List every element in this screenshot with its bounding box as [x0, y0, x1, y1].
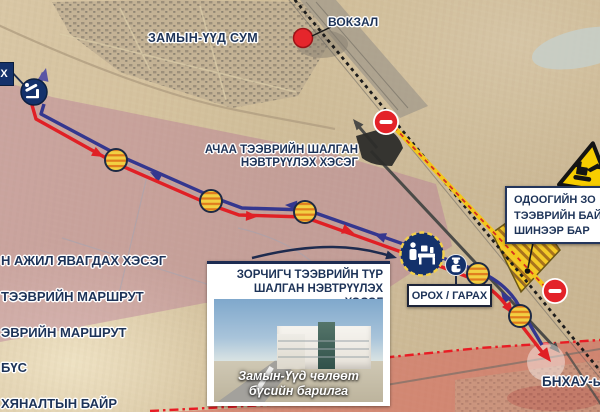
photo-caption: Замын-Үүд чөлөөт бүсийн барилга — [214, 369, 383, 399]
construction-leader-dot — [525, 268, 531, 274]
legend-item: БҮС — [1, 361, 166, 379]
legend-item: ХЯНАЛТЫН БАЙР — [1, 397, 166, 412]
photo-building — [277, 326, 372, 369]
legend-item: Н АЖИЛ ЯВАГДАХ ХЭСЭГ — [1, 254, 166, 272]
legend-item: ТЭЭВРИЙН МАРШРУТ — [1, 290, 166, 308]
station-label: ВОКЗАЛ — [328, 16, 378, 29]
passenger-checkpoint-callout: ЗОРЧИГЧ ТЭЭВРИЙН ТҮР ШАЛГАН НЭВТРҮҮЛЭХ Х… — [207, 261, 390, 406]
checkpoint-marker — [105, 149, 127, 171]
checkpoint-marker — [509, 305, 531, 327]
legend-item: ЭВРИЙН МАРШРУТ — [1, 326, 166, 344]
edge-partial-label: Х — [0, 62, 14, 86]
town-area — [52, 0, 330, 108]
map-canvas: ЗАМЫН-ҮҮД СУМ ВОКЗАЛ АЧАА ТЭЭВРИЙН ШАЛГА… — [0, 0, 600, 412]
entry-exit-label: ОРОХ / ГАРАХ — [407, 284, 492, 307]
no-entry-sign — [542, 278, 568, 304]
border-barrier-icon — [21, 79, 47, 105]
station-marker — [294, 29, 313, 48]
photo-building-windows — [278, 334, 369, 360]
cargo-checkpoint-label: АЧАА ТЭЭВРИЙН ШАЛГАН НЭВТРҮҮЛЭХ ХЭСЭГ — [203, 144, 358, 170]
china-label: БНХАУ-ы — [542, 374, 600, 389]
pond-area — [528, 19, 600, 78]
construction-notice: ОДООГИЙН ЗО ТЭЭВРИЙН БАЙ ШИНЭЭР БАР — [505, 186, 600, 244]
checkpoint-marker — [294, 201, 316, 223]
no-entry-sign — [373, 109, 399, 135]
free-zone-building-photo: Замын-Үүд чөлөөт бүсийн барилга — [214, 299, 383, 402]
checkpoint-marker — [467, 263, 489, 285]
town-label: ЗАМЫН-ҮҮД СУМ — [148, 31, 258, 45]
roadworks-warning-icon — [559, 139, 600, 193]
legend: Н АЖИЛ ЯВАГДАХ ХЭСЭГ ТЭЭВРИЙН МАРШРУТ ЭВ… — [1, 236, 166, 412]
checkpoint-marker — [200, 190, 222, 212]
customs-desk-icon — [401, 233, 444, 276]
customs-officer-icon — [446, 255, 467, 276]
